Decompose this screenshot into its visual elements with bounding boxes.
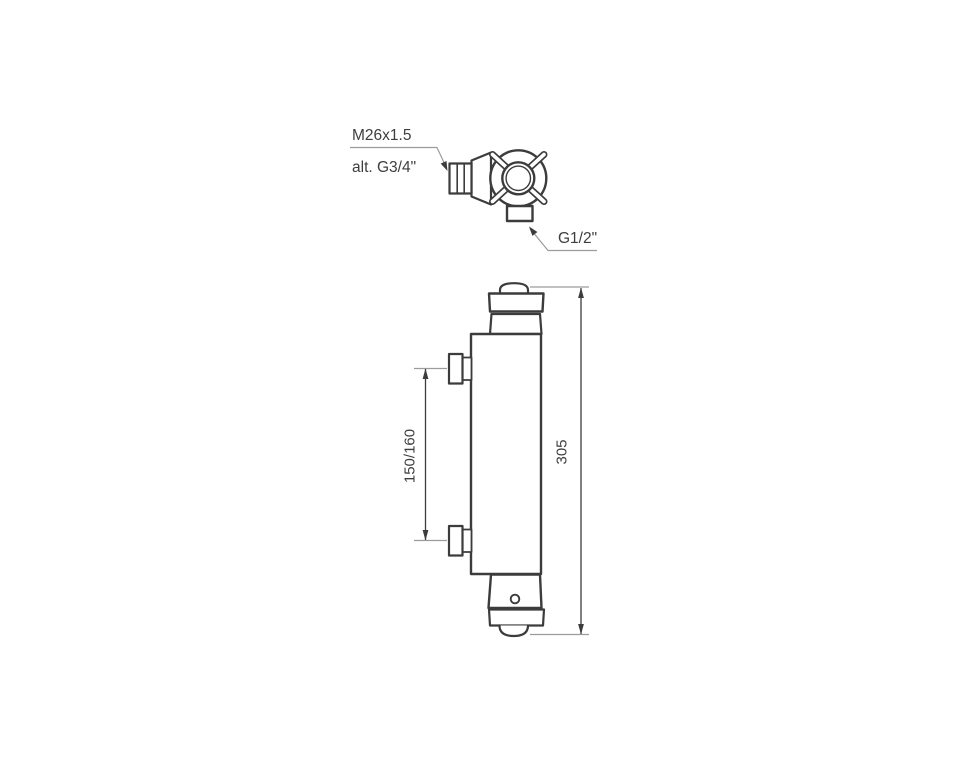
- mixer-valve-drawing: M26x1.5 alt. G3/4" G1/2": [0, 0, 960, 768]
- arrowhead: [529, 227, 537, 236]
- top-knob-dome: [500, 283, 528, 293]
- front-view: [449, 283, 544, 636]
- top-view: [450, 150, 547, 221]
- overall-height-value: 305: [554, 439, 571, 464]
- inlet-spacing-value: 150/160: [402, 429, 419, 483]
- arrowhead-down: [578, 624, 584, 635]
- lower-inlet: [449, 526, 472, 556]
- dimension-inlet-spacing: 150/160: [402, 369, 448, 541]
- top-cap-collar: [489, 294, 544, 312]
- outlet-port: [507, 206, 533, 221]
- arrowhead: [441, 161, 448, 171]
- upper-inlet-nut: [449, 354, 463, 384]
- upper-inlet: [449, 354, 472, 384]
- label-inlet-thread: M26x1.5 alt. G3/4": [350, 127, 448, 176]
- arrowhead-up: [578, 288, 584, 299]
- threaded-nipple: [450, 164, 472, 194]
- neck-section: [490, 314, 542, 334]
- bottom-cap-collar: [489, 610, 544, 626]
- label-outlet-thread: G1/2": [529, 227, 597, 251]
- thread-label: M26x1.5: [352, 127, 411, 144]
- technical-drawing-page: M26x1.5 alt. G3/4" G1/2": [0, 0, 960, 768]
- lower-inlet-nut: [449, 526, 463, 556]
- screw-hole: [511, 595, 520, 604]
- arrowhead-down: [423, 530, 429, 541]
- alt-thread-label: alt. G3/4": [352, 159, 416, 176]
- top-view-body-connector: [472, 153, 492, 205]
- outlet-label: G1/2": [558, 230, 597, 247]
- bottom-knob-dome: [500, 626, 529, 637]
- arrowhead-up: [423, 369, 429, 380]
- handle-hub-outer-ring: [502, 162, 534, 194]
- main-body-cylinder: [471, 334, 541, 574]
